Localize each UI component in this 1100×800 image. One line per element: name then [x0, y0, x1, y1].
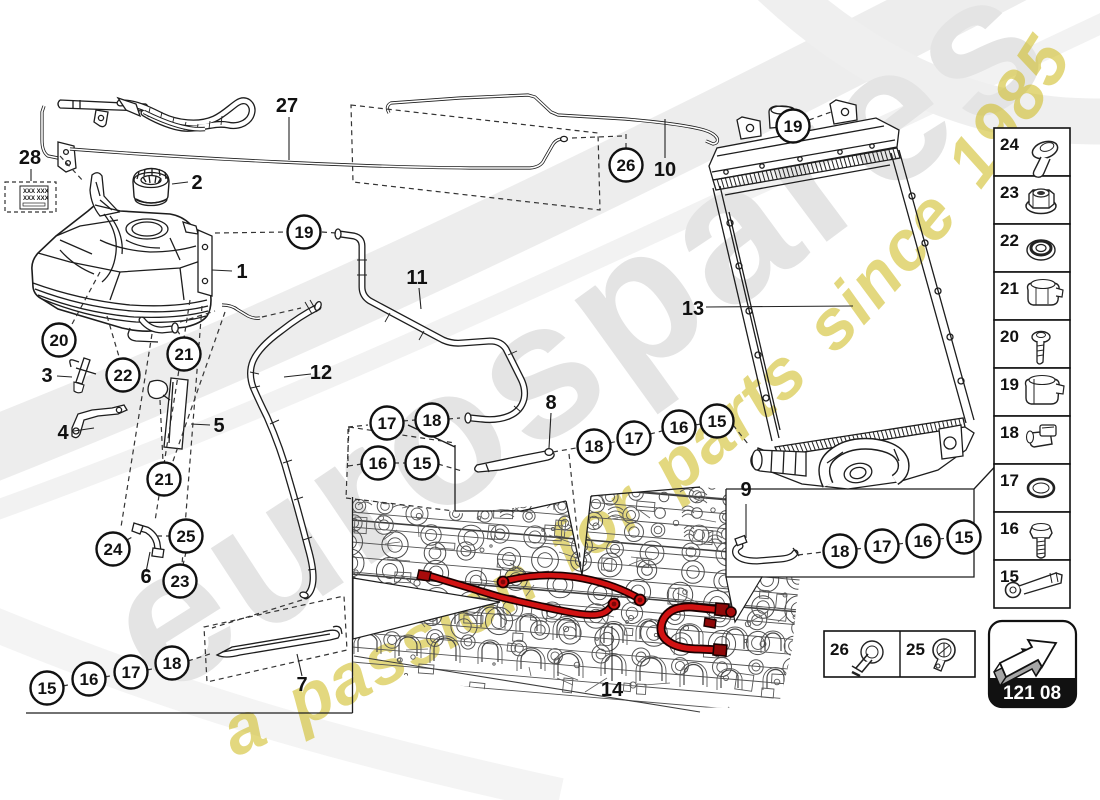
svg-text:18: 18: [1000, 423, 1019, 442]
svg-text:26: 26: [830, 640, 849, 659]
svg-text:15: 15: [955, 528, 974, 547]
svg-text:23: 23: [1000, 183, 1019, 202]
svg-text:15: 15: [708, 412, 727, 431]
svg-text:26: 26: [617, 156, 636, 175]
svg-text:18: 18: [423, 411, 442, 430]
svg-text:20: 20: [1000, 327, 1019, 346]
svg-text:4: 4: [57, 422, 69, 444]
svg-text:17: 17: [378, 414, 397, 433]
svg-text:19: 19: [295, 223, 314, 242]
svg-text:17: 17: [873, 537, 892, 556]
svg-text:17: 17: [625, 429, 644, 448]
svg-text:9: 9: [740, 479, 751, 501]
svg-text:14: 14: [601, 679, 624, 701]
svg-text:10: 10: [654, 159, 676, 181]
svg-text:24: 24: [104, 540, 123, 559]
svg-text:16: 16: [1000, 519, 1019, 538]
svg-text:1: 1: [236, 261, 247, 283]
svg-text:18: 18: [831, 542, 850, 561]
svg-text:16: 16: [914, 532, 933, 551]
svg-text:18: 18: [163, 654, 182, 673]
svg-text:21: 21: [175, 345, 194, 364]
svg-text:22: 22: [1000, 231, 1019, 250]
svg-text:19: 19: [784, 117, 803, 136]
svg-text:16: 16: [369, 454, 388, 473]
svg-text:24: 24: [1000, 135, 1019, 154]
svg-text:21: 21: [1000, 279, 1019, 298]
svg-text:18: 18: [585, 437, 604, 456]
svg-text:6: 6: [140, 566, 151, 588]
svg-text:11: 11: [406, 267, 427, 289]
svg-text:22: 22: [114, 366, 133, 385]
svg-text:3: 3: [41, 365, 52, 387]
svg-text:12: 12: [310, 362, 332, 384]
svg-text:19: 19: [1000, 375, 1019, 394]
svg-text:15: 15: [413, 454, 432, 473]
svg-text:8: 8: [545, 392, 556, 414]
svg-text:21: 21: [155, 470, 174, 489]
svg-text:13: 13: [682, 298, 704, 320]
svg-text:XXX XXX: XXX XXX: [23, 196, 49, 202]
svg-text:16: 16: [80, 670, 99, 689]
svg-text:23: 23: [171, 572, 190, 591]
svg-text:17: 17: [1000, 471, 1019, 490]
svg-text:2: 2: [191, 172, 202, 194]
svg-text:17: 17: [122, 663, 141, 682]
svg-text:16: 16: [670, 418, 689, 437]
svg-text:7: 7: [296, 674, 307, 696]
svg-text:25: 25: [906, 640, 925, 659]
svg-text:121 08: 121 08: [1003, 683, 1061, 704]
svg-text:20: 20: [50, 331, 69, 350]
svg-text:XXX XXX: XXX XXX: [23, 189, 49, 195]
svg-text:5: 5: [213, 415, 224, 437]
svg-text:25: 25: [177, 527, 196, 546]
svg-text:15: 15: [38, 679, 57, 698]
svg-text:28: 28: [19, 147, 41, 169]
svg-text:27: 27: [276, 95, 298, 117]
